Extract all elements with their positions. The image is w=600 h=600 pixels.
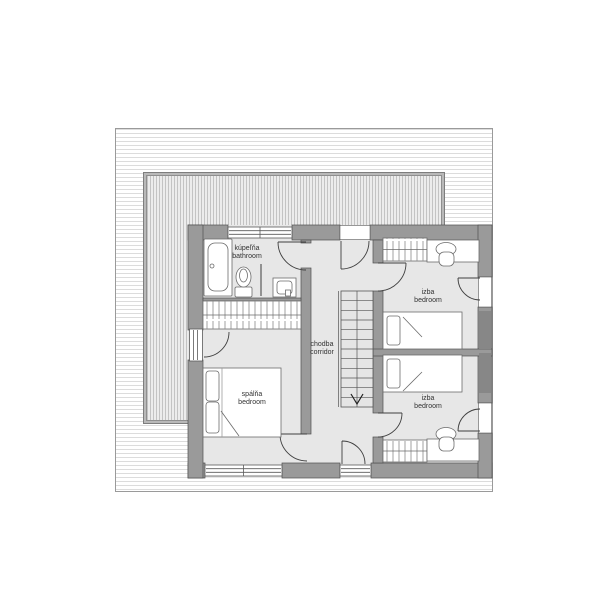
door-opening-terrace (340, 226, 370, 240)
room-label-bottom-bedroom: izba bedroom (414, 395, 442, 411)
floor-plan-drawing: kúpeľňa bathroom chodba corridor spálňa … (0, 0, 600, 600)
room-label-bathroom: kúpeľňa bathroom (232, 245, 262, 261)
toilet-icon (235, 267, 252, 297)
staircase-icon (339, 291, 374, 407)
room-label-primary: izba (414, 395, 442, 403)
plan-linework (0, 0, 600, 600)
window-left-bedroom (190, 329, 203, 361)
room-label-primary: izba (414, 289, 442, 297)
room-label-secondary: bedroom (414, 297, 442, 305)
single-bed-icon (383, 355, 462, 392)
single-bed-icon (383, 312, 462, 349)
room-label-master-bedroom: spálňa bedroom (238, 391, 266, 407)
door-opening-balcony-bottom (479, 403, 492, 433)
room-label-primary: chodba (310, 341, 334, 349)
room-label-top-bedroom: izba bedroom (414, 289, 442, 305)
sink-icon (273, 278, 296, 297)
window-bottom-corridor (340, 465, 371, 476)
wardrobe-icon (383, 440, 427, 462)
room-label-secondary: bedroom (238, 399, 266, 407)
room-label-secondary: bedroom (414, 403, 442, 411)
bathtub-icon (204, 239, 232, 296)
room-label-secondary: corridor (310, 349, 334, 357)
room-label-primary: spálňa (238, 391, 266, 399)
room-label-corridor: chodba corridor (310, 341, 334, 357)
wardrobe-icon (383, 238, 427, 261)
window-top-bathroom (228, 227, 292, 238)
window-bottom-bedroom (205, 465, 282, 476)
door-opening-balcony-top (479, 277, 492, 307)
room-label-secondary: bathroom (232, 253, 262, 261)
room-label-primary: kúpeľňa (232, 245, 262, 253)
wardrobe-icon (203, 301, 301, 329)
